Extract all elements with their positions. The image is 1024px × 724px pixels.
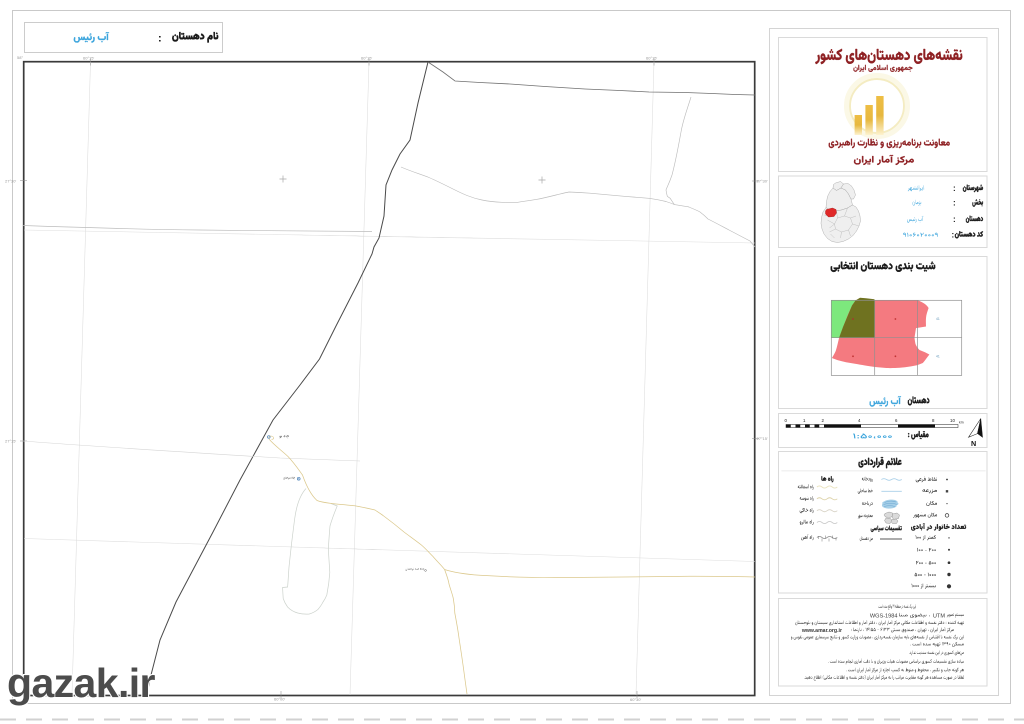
svg-text:km: km bbox=[959, 421, 964, 425]
svg-text:N: N bbox=[971, 439, 976, 448]
svg-text:60°15': 60°15' bbox=[646, 56, 657, 61]
svg-text:60°15': 60°15' bbox=[83, 56, 94, 61]
svg-text::: : bbox=[952, 231, 955, 240]
svg-text:gazak.ir: gazak.ir bbox=[7, 660, 156, 706]
svg-text:41: 41 bbox=[936, 317, 940, 321]
svg-text::: : bbox=[953, 199, 956, 208]
svg-text:27°15': 27°15' bbox=[5, 439, 16, 444]
svg-text::: : bbox=[953, 215, 956, 224]
svg-text:WGS-1984: WGS-1984 bbox=[870, 613, 898, 619]
svg-text:60°00': 60°00' bbox=[274, 697, 285, 702]
svg-text::: : bbox=[953, 184, 956, 193]
svg-text:60°30': 60°30' bbox=[630, 697, 641, 702]
svg-text:UTM: UTM bbox=[933, 613, 945, 619]
svg-text:60°15': 60°15' bbox=[361, 56, 372, 61]
svg-text:27°30': 27°30' bbox=[5, 179, 16, 184]
svg-text::: : bbox=[158, 33, 162, 45]
svg-text:58°: 58° bbox=[17, 55, 23, 60]
svg-text:10: 10 bbox=[950, 418, 955, 423]
svg-text:www.amar.org.ir: www.amar.org.ir bbox=[801, 628, 842, 634]
svg-text:41: 41 bbox=[936, 355, 940, 359]
